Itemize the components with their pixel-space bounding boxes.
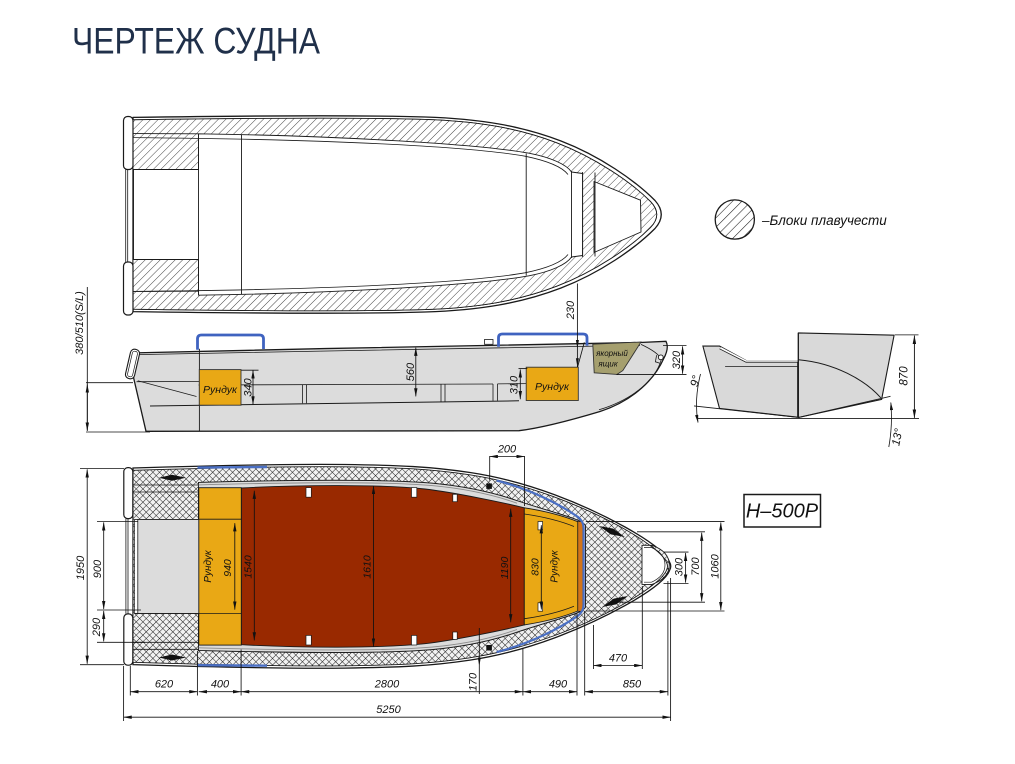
- svg-text:Рундук: Рундук: [203, 384, 238, 396]
- svg-text:ящик: ящик: [597, 360, 619, 369]
- svg-text:830: 830: [530, 558, 542, 576]
- svg-text:200: 200: [497, 444, 517, 456]
- svg-text:Рундук: Рундук: [203, 549, 214, 583]
- svg-text:700: 700: [690, 556, 702, 575]
- svg-text:900: 900: [92, 559, 104, 578]
- svg-text:340: 340: [243, 377, 255, 396]
- svg-text:230: 230: [565, 300, 577, 320]
- svg-text:5250: 5250: [376, 704, 401, 716]
- svg-text:300: 300: [674, 557, 686, 576]
- svg-text:560: 560: [405, 362, 417, 381]
- svg-text:якорный: якорный: [595, 349, 628, 358]
- svg-text:–Блоки плавучести: –Блоки плавучести: [761, 213, 887, 228]
- svg-text:320: 320: [671, 350, 683, 369]
- svg-text:Рундук: Рундук: [550, 549, 561, 583]
- svg-text:310: 310: [509, 375, 521, 394]
- svg-text:ЧЕРТЕЖ СУДНА: ЧЕРТЕЖ СУДНА: [72, 21, 320, 62]
- svg-text:620: 620: [155, 679, 174, 691]
- svg-text:940: 940: [222, 559, 234, 577]
- svg-text:Рундук: Рундук: [535, 381, 570, 393]
- svg-text:13°: 13°: [890, 427, 905, 447]
- svg-text:1540: 1540: [243, 555, 255, 579]
- svg-text:850: 850: [623, 679, 642, 691]
- svg-text:380/510(S/L): 380/510(S/L): [74, 291, 86, 355]
- svg-text:Н–500Р: Н–500Р: [746, 501, 819, 523]
- svg-text:1060: 1060: [709, 553, 721, 578]
- svg-text:290: 290: [91, 617, 103, 637]
- svg-text:400: 400: [211, 679, 230, 691]
- svg-text:1950: 1950: [75, 555, 87, 580]
- svg-text:170: 170: [468, 672, 480, 691]
- svg-text:490: 490: [549, 679, 568, 691]
- svg-text:1190: 1190: [499, 557, 511, 580]
- svg-text:470: 470: [609, 653, 628, 665]
- svg-text:1610: 1610: [362, 555, 374, 579]
- svg-text:870: 870: [899, 366, 911, 386]
- svg-text:2800: 2800: [374, 679, 400, 691]
- svg-text:9°: 9°: [689, 374, 704, 388]
